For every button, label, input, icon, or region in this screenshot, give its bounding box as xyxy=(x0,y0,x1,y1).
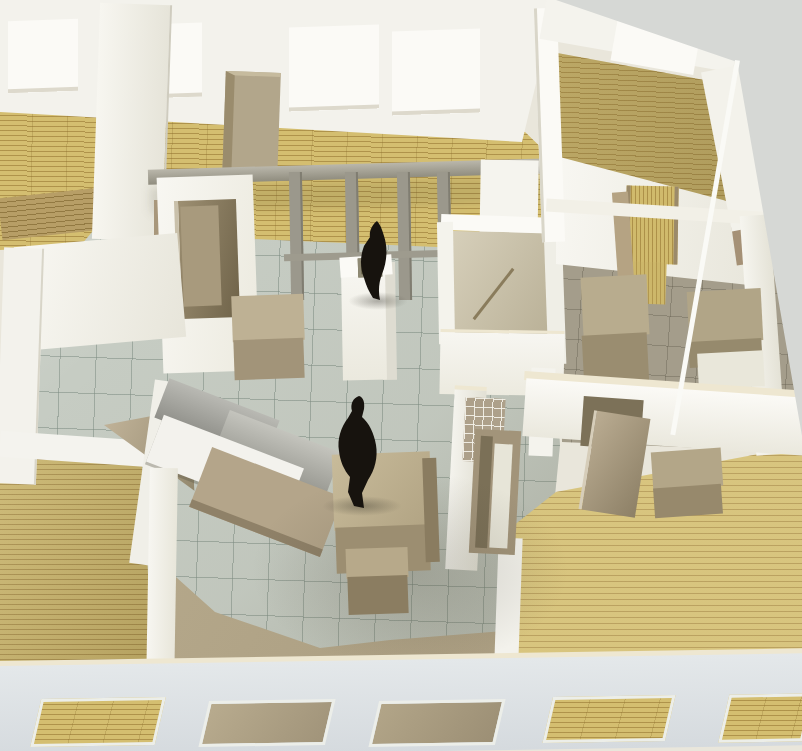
window-opening xyxy=(542,695,675,743)
window-opening xyxy=(198,699,335,747)
model-photo xyxy=(0,0,802,751)
window-opening xyxy=(289,24,379,111)
partition-mullion xyxy=(289,172,304,300)
small-room-wall-left xyxy=(437,222,455,344)
window-opening xyxy=(392,28,480,115)
storage-block-top xyxy=(580,274,649,337)
wardrobe-front xyxy=(653,484,723,519)
door-panel xyxy=(180,205,221,306)
human-figure-1 xyxy=(352,220,400,302)
window-opening xyxy=(30,697,166,747)
doorway-opening xyxy=(625,186,678,265)
terrace-side-wall xyxy=(146,468,178,688)
tall-cabinet xyxy=(222,71,281,181)
window-opening xyxy=(8,19,78,93)
side-table-top xyxy=(231,294,305,342)
window-opening xyxy=(368,699,505,747)
human-figure-2 xyxy=(328,394,394,510)
side-table-front xyxy=(233,338,304,380)
window-opening xyxy=(718,693,802,742)
stacked-box-front xyxy=(347,575,408,615)
